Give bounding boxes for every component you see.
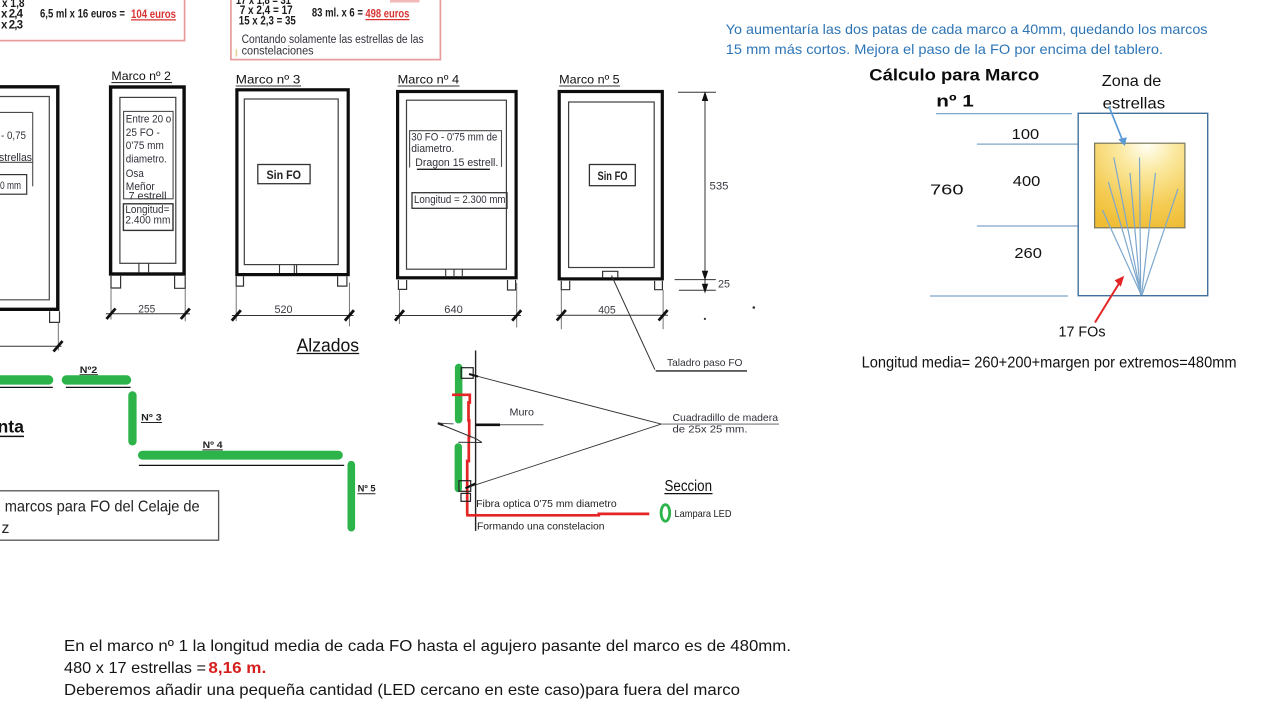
svg-text:de 25x 25 mm.: de 25x 25 mm. [673,424,748,435]
svg-text:strellas: strellas [0,152,32,164]
svg-text:25: 25 [718,278,730,290]
svg-text:480 x 17 estrellas =: 480 x 17 estrellas = [64,660,206,677]
svg-text:760: 760 [930,181,964,198]
svg-text:535: 535 [710,181,729,193]
svg-text:15 x 2,3 = 35: 15 x 2,3 = 35 [239,16,297,28]
svg-text:En el marco nº 1 la longitud m: En el marco nº 1 la longitud media de ca… [64,638,791,655]
svg-text:Marco nº 3: Marco nº 3 [236,72,301,86]
svg-text:104 euros: 104 euros [131,9,176,21]
svg-text:255: 255 [138,303,155,315]
svg-text:Yo aumentaría las dos patas de: Yo aumentaría las dos patas de cada marc… [726,22,1208,37]
svg-text:Seccion: Seccion [665,478,713,495]
svg-text:Nº 4: Nº 4 [203,440,224,451]
svg-text:0'75 mm: 0'75 mm [126,140,164,152]
svg-text:260: 260 [1014,245,1042,262]
svg-text:15 mm más cortos. Mejora el pa: 15 mm más cortos. Mejora el paso de la F… [726,42,1163,57]
svg-text:25 FO -: 25 FO - [126,127,160,139]
svg-text:Cálculo para Marco: Cálculo para Marco [869,66,1039,85]
svg-text:x 2,3: x 2,3 [1,19,23,31]
svg-text:Osa: Osa [126,168,144,180]
svg-text:405: 405 [598,305,616,317]
svg-text:z: z [2,520,10,537]
svg-text:400: 400 [1013,173,1041,190]
svg-text:8,16 m.: 8,16 m. [208,660,266,677]
svg-text:Cuadradillo de madera: Cuadradillo de madera [673,413,779,424]
svg-text:6,5 ml x 16 euros =: 6,5 ml x 16 euros = [40,9,125,21]
svg-text:- 0,75: - 0,75 [1,130,26,142]
svg-text:Fibra optica 0'75 mm diametro: Fibra optica 0'75 mm diametro [476,499,617,510]
svg-text:2.400 mm: 2.400 mm [125,214,170,226]
svg-text:17 FOs: 17 FOs [1059,324,1106,341]
svg-text:nº 1: nº 1 [936,91,974,110]
svg-text:83 ml. x 6 =: 83 ml. x 6 = [312,8,363,20]
svg-text:nta: nta [0,417,24,437]
svg-text:Dragon 15 estrell.: Dragon 15 estrell. [415,157,498,169]
svg-text:Sin FO: Sin FO [267,168,302,182]
svg-text:640: 640 [444,304,463,316]
svg-text:Entre 20 o: Entre 20 o [126,114,172,126]
svg-text:Formando una constelacion: Formando una constelacion [477,522,605,533]
svg-text:498 euros: 498 euros [365,9,409,21]
svg-text:Longitud media= 260+200+margen: Longitud media= 260+200+margen por extre… [862,354,1237,371]
svg-text:Lampara LED: Lampara LED [675,508,732,520]
svg-text:Zona de: Zona de [1102,73,1162,90]
svg-text:Sin FO: Sin FO [598,169,628,183]
svg-text:estrellas: estrellas [1103,96,1166,113]
svg-text:100: 100 [1012,126,1039,143]
svg-text:Taladro paso FO: Taladro paso FO [667,357,743,369]
svg-text:0 mm: 0 mm [0,180,21,192]
svg-text:Alzados: Alzados [297,334,360,355]
svg-text:Deberemos añadir una pequeña c: Deberemos añadir una pequeña cantidad (L… [64,682,740,699]
svg-text:Longitud = 2.300 mm: Longitud = 2.300 mm [414,194,506,206]
svg-text:Muro: Muro [510,408,535,419]
svg-text:marcos para FO del Celaje de: marcos para FO del Celaje de [5,499,200,516]
svg-text:Marco nº 2: Marco nº 2 [111,69,171,83]
svg-text:Marco nº 4: Marco nº 4 [398,72,460,86]
svg-text:520: 520 [275,304,293,316]
svg-text:Contando solamente las estrell: Contando solamente las estrellas de las [242,34,424,46]
svg-text:30 FO - 0'75 mm de: 30 FO - 0'75 mm de [411,131,497,143]
svg-text:Nº 3: Nº 3 [141,412,162,423]
svg-text:diametro.: diametro. [126,153,167,165]
svg-text:7 estrell: 7 estrell [129,190,167,202]
svg-text:constelaciones: constelaciones [242,46,314,58]
svg-text:diametro.: diametro. [411,143,454,155]
svg-text:Nº 5: Nº 5 [358,484,377,495]
svg-text:Marco nº 5: Marco nº 5 [559,72,620,86]
